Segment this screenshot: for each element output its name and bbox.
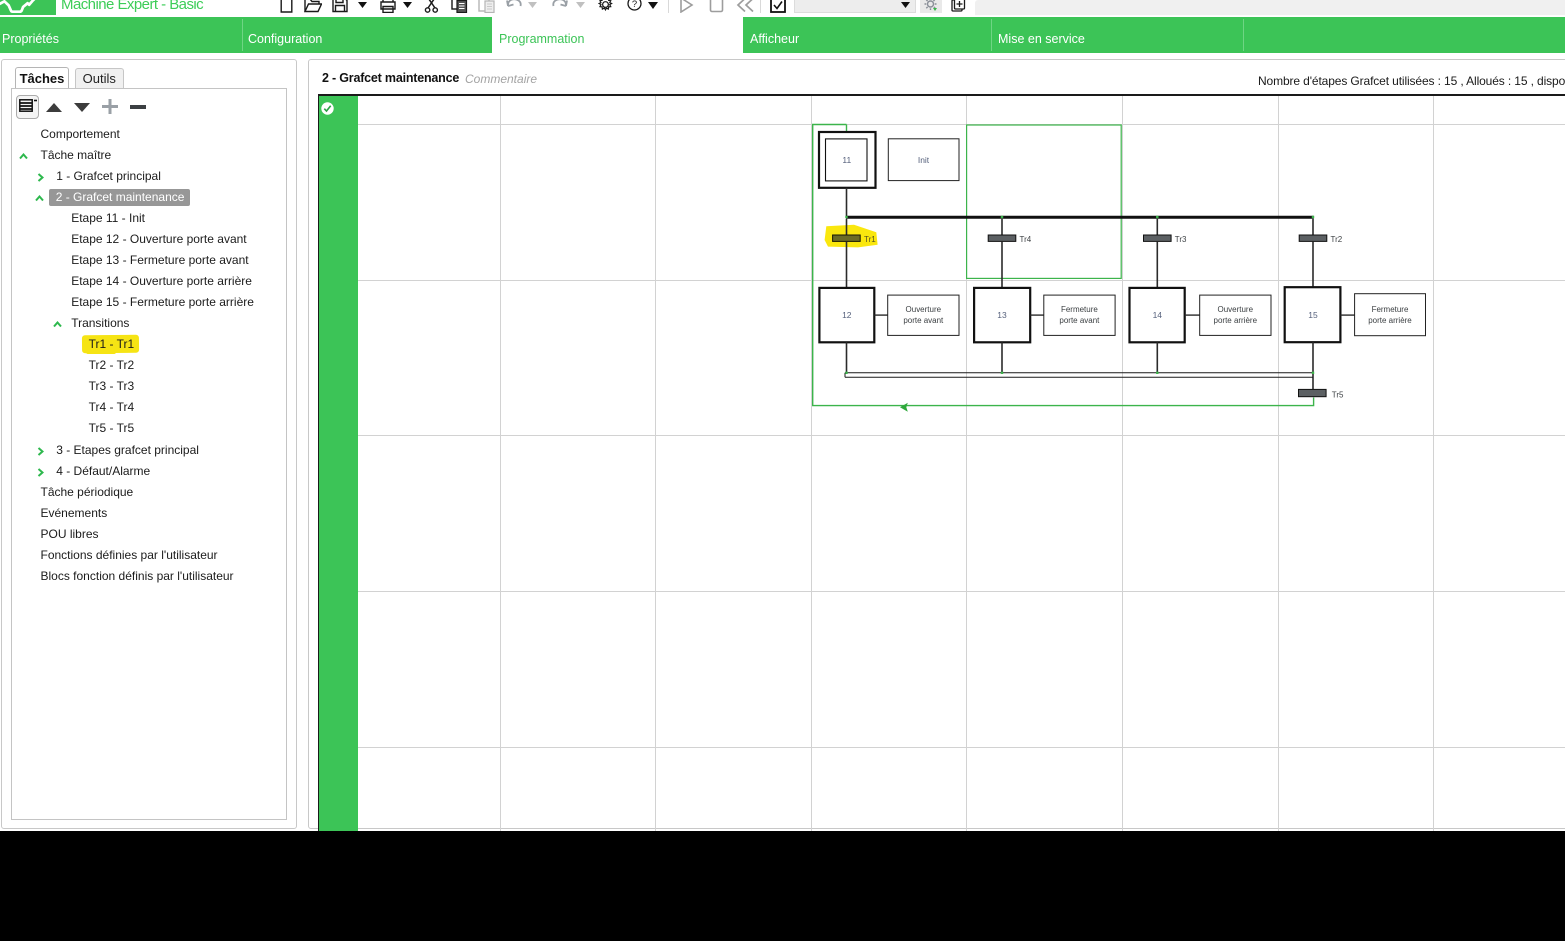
svg-text:Tr2: Tr2 [1330,235,1342,244]
svg-text:14: 14 [1153,310,1163,320]
svg-text:?: ? [632,0,637,10]
svg-text:Fermeture: Fermeture [1372,305,1409,314]
svg-text:Tr4: Tr4 [1019,235,1031,244]
svg-text:porte arrière: porte arrière [1368,316,1412,325]
svg-text:Tr3: Tr3 [1175,235,1187,244]
svg-text:Init: Init [918,155,930,165]
svg-text:Ouverture: Ouverture [906,305,942,314]
svg-text:13: 13 [997,310,1007,320]
svg-text:11: 11 [842,155,851,165]
svg-text:porte arrière: porte arrière [1214,316,1258,325]
svg-text:15: 15 [1308,310,1318,320]
svg-text:Fermeture: Fermeture [1061,305,1098,314]
svg-text:Ouverture: Ouverture [1218,305,1254,314]
svg-text:12: 12 [842,310,852,320]
svg-text:porte avant: porte avant [903,316,944,325]
svg-text:Tr1: Tr1 [864,235,876,244]
svg-text:Tr5: Tr5 [1332,390,1344,399]
svg-text:porte avant: porte avant [1059,316,1100,325]
